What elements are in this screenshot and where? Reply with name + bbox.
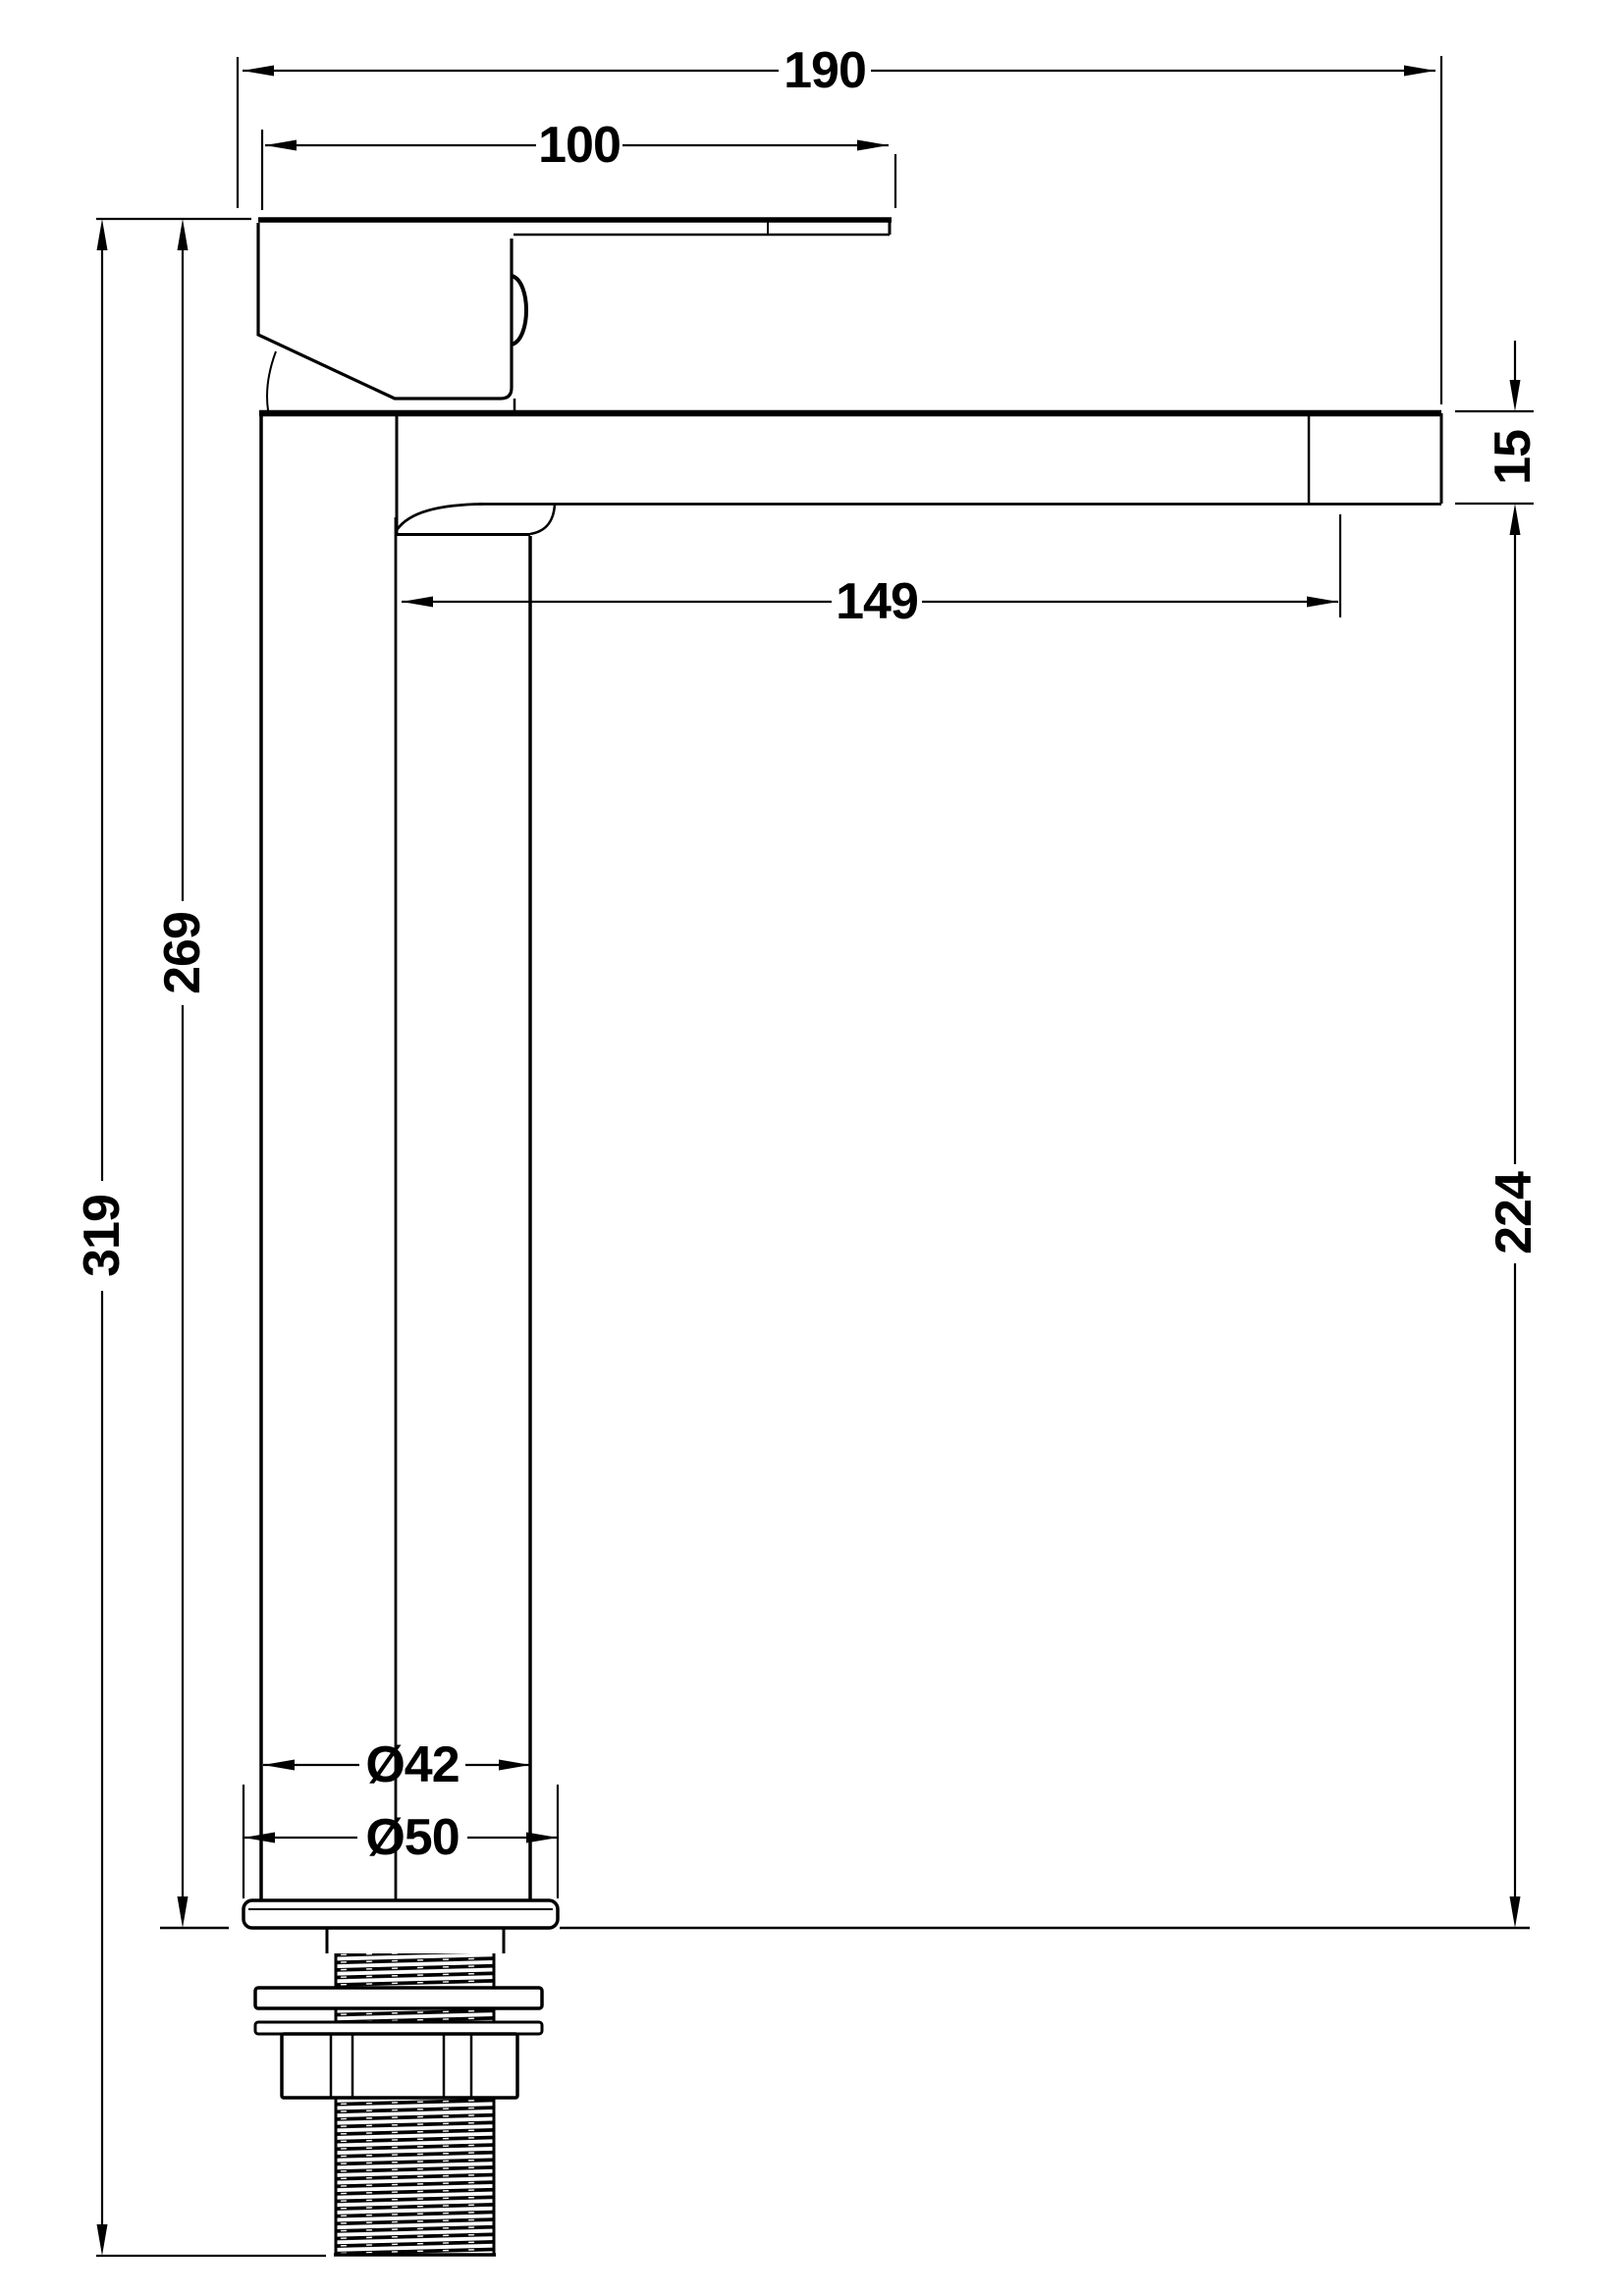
base-flange: [243, 1900, 558, 1928]
collar-edges: [327, 1928, 504, 1953]
thread-section-mid: [336, 2008, 494, 2022]
technical-drawing: 190 100 149 15: [0, 0, 1623, 2296]
arrow-left-icon: [263, 1760, 295, 1771]
dim-body-diameter: Ø42: [263, 1736, 530, 1793]
washer-upper: [255, 1988, 542, 2008]
dim-deck-to-handle: 269: [96, 219, 251, 1928]
arrow-right-icon: [499, 1760, 530, 1771]
dim-label-149: 149: [836, 573, 918, 630]
arrow-left-icon: [243, 1833, 275, 1843]
dim-label-15: 15: [1485, 430, 1542, 485]
dim-base-diameter: Ø50: [243, 1785, 558, 1898]
arrow-down-icon: [1510, 1896, 1521, 1928]
dim-overall-height: 319: [74, 219, 326, 2256]
arrow-left-icon: [265, 140, 297, 151]
lever-swing-arc: [267, 351, 276, 410]
dim-label-d42: Ø42: [365, 1736, 459, 1793]
arrow-left-icon: [402, 597, 433, 608]
dim-label-269: 269: [154, 912, 211, 994]
drawing-page: 190 100 149 15: [0, 0, 1623, 2296]
handle-body: [258, 223, 512, 399]
arrow-up-icon: [1510, 504, 1521, 535]
arrow-right-icon: [1404, 66, 1435, 77]
arrow-up-icon: [178, 219, 189, 250]
spout-shoulder-fillet: [530, 505, 555, 534]
dim-label-190: 190: [784, 42, 866, 99]
dim-label-d50: Ø50: [365, 1809, 459, 1866]
arrow-right-icon: [857, 140, 889, 151]
dim-label-224: 224: [1486, 1171, 1542, 1255]
fixing-assembly: [160, 1900, 1530, 2255]
arrow-down-icon: [97, 2224, 108, 2256]
arrow-right-icon: [1307, 597, 1338, 608]
thread-section-upper: [336, 1953, 494, 1988]
arrow-left-icon: [243, 66, 274, 77]
thread-section-lower: [336, 2098, 494, 2255]
dim-label-319: 319: [74, 1195, 131, 1277]
washer-lower: [255, 2022, 542, 2034]
dim-handle-length: 100: [262, 117, 895, 210]
backnut: [282, 2034, 517, 2098]
faucet-outline: [258, 218, 1441, 1900]
dim-spout-reach: 149: [402, 514, 1340, 630]
spout-neck-fillet: [397, 505, 483, 531]
dim-deck-to-spout: 224: [1486, 533, 1542, 1928]
arrow-down-icon: [178, 1896, 189, 1928]
dim-label-100: 100: [538, 117, 621, 174]
dim-spout-height: 15: [1455, 341, 1542, 535]
handle-indicator-button: [512, 276, 526, 345]
dim-overall-projection: 190: [238, 42, 1441, 404]
arrow-up-icon: [97, 219, 108, 250]
arrow-right-icon: [526, 1833, 558, 1843]
arrow-down-icon: [1510, 380, 1521, 411]
